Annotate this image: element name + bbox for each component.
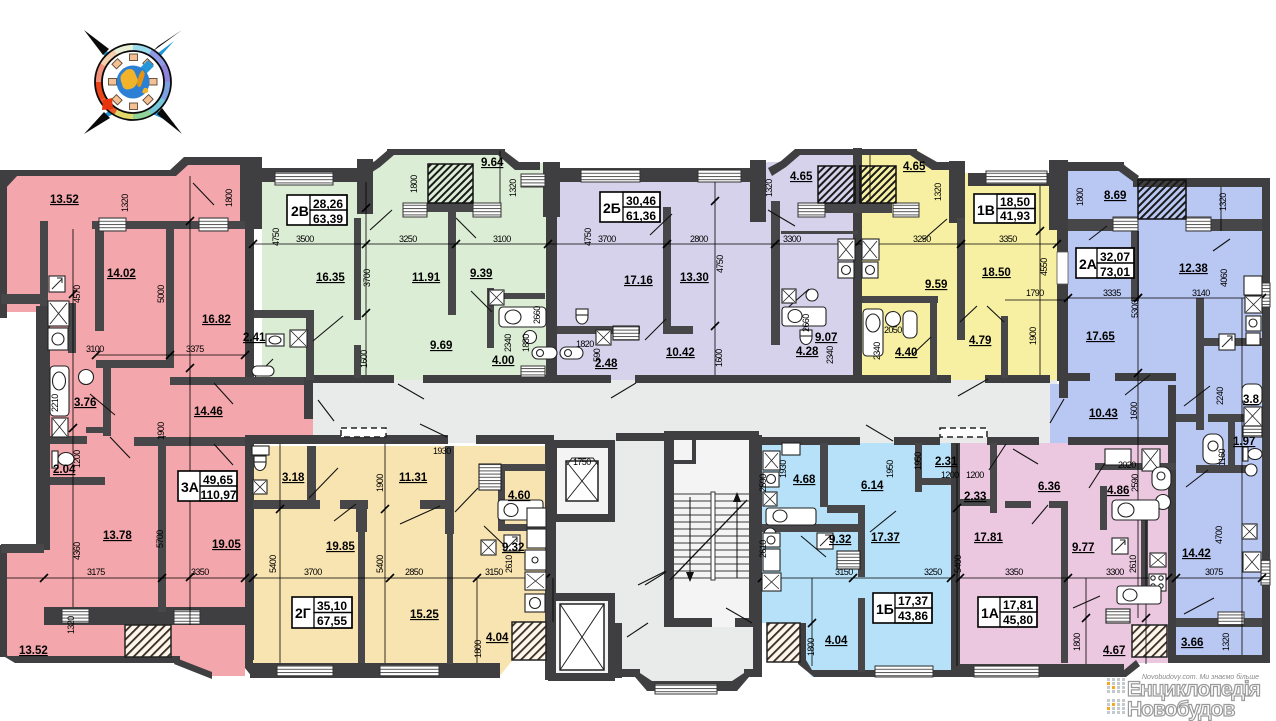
svg-text:1750: 1750 (573, 457, 591, 467)
svg-text:2800: 2800 (690, 234, 708, 244)
svg-text:8.69: 8.69 (1104, 190, 1126, 202)
svg-text:4.86: 4.86 (1107, 485, 1129, 497)
svg-text:3150: 3150 (835, 567, 853, 577)
svg-text:4.60: 4.60 (508, 490, 530, 502)
svg-text:3350: 3350 (191, 567, 209, 577)
svg-text:2.31: 2.31 (935, 456, 958, 468)
svg-text:4.68: 4.68 (793, 474, 816, 486)
svg-text:4570: 4570 (72, 285, 82, 303)
svg-text:6.14: 6.14 (861, 480, 884, 492)
svg-text:1160: 1160 (1217, 448, 1227, 466)
svg-text:14.02: 14.02 (107, 268, 136, 280)
svg-text:4750: 4750 (715, 255, 725, 273)
svg-text:3075: 3075 (1205, 567, 1223, 577)
svg-text:1320: 1320 (933, 183, 943, 201)
svg-text:18,50: 18,50 (1000, 195, 1030, 209)
svg-text:2590: 2590 (1130, 474, 1140, 492)
svg-text:43,86: 43,86 (898, 609, 928, 623)
svg-text:1320: 1320 (508, 179, 518, 197)
svg-text:3700: 3700 (598, 234, 616, 244)
svg-text:2850: 2850 (405, 567, 423, 577)
svg-text:11.31: 11.31 (399, 472, 428, 484)
svg-text:1950: 1950 (885, 460, 895, 478)
svg-text:17,81: 17,81 (1003, 598, 1033, 612)
svg-text:2610: 2610 (504, 555, 514, 573)
svg-text:3375: 3375 (186, 344, 204, 354)
svg-text:3150: 3150 (485, 567, 503, 577)
svg-text:2610: 2610 (1128, 555, 1138, 573)
svg-text:28,26: 28,26 (313, 197, 343, 211)
svg-text:4360: 4360 (72, 542, 82, 560)
svg-text:19.05: 19.05 (212, 539, 241, 551)
svg-text:1.97: 1.97 (1233, 436, 1255, 448)
svg-text:3250: 3250 (913, 234, 931, 244)
svg-text:1600: 1600 (359, 350, 369, 368)
svg-text:5400: 5400 (375, 555, 385, 573)
svg-text:13.52: 13.52 (19, 645, 48, 657)
svg-text:3335: 3335 (1103, 288, 1121, 298)
svg-text:13.78: 13.78 (103, 530, 132, 542)
svg-text:3А: 3А (181, 479, 199, 495)
svg-text:9.69: 9.69 (430, 340, 452, 352)
svg-text:18.50: 18.50 (982, 267, 1011, 279)
svg-text:4.04: 4.04 (825, 635, 848, 647)
svg-text:3250: 3250 (399, 234, 417, 244)
svg-text:5400: 5400 (268, 555, 278, 573)
svg-text:1320: 1320 (66, 616, 76, 634)
svg-text:1800: 1800 (1072, 633, 1082, 651)
svg-text:3.66: 3.66 (1181, 637, 1203, 649)
svg-text:1320: 1320 (120, 194, 130, 212)
svg-text:2Б: 2Б (603, 200, 621, 216)
svg-text:12.38: 12.38 (1179, 263, 1208, 275)
svg-text:35,10: 35,10 (317, 599, 347, 613)
svg-text:9.64: 9.64 (481, 157, 504, 169)
svg-text:2660: 2660 (801, 314, 811, 332)
svg-text:110,97: 110,97 (201, 488, 237, 502)
svg-text:13.30: 13.30 (680, 272, 709, 284)
svg-text:4700: 4700 (1214, 526, 1224, 544)
svg-text:Новобудов: Новобудов (1127, 698, 1235, 721)
svg-text:17.65: 17.65 (1086, 331, 1115, 343)
svg-text:9.39: 9.39 (470, 268, 492, 280)
svg-text:2210: 2210 (50, 394, 60, 412)
svg-text:30,46: 30,46 (626, 194, 656, 208)
svg-text:73,01: 73,01 (1100, 265, 1130, 279)
svg-text:4.40: 4.40 (895, 347, 917, 359)
svg-text:3500: 3500 (296, 234, 314, 244)
svg-text:14.46: 14.46 (194, 406, 223, 418)
svg-text:4.00: 4.00 (492, 355, 514, 367)
svg-text:4.67: 4.67 (1103, 645, 1125, 657)
svg-text:3300: 3300 (783, 234, 801, 244)
svg-text:4750: 4750 (583, 228, 593, 246)
svg-text:1А: 1А (981, 605, 999, 621)
svg-text:3350: 3350 (1005, 567, 1023, 577)
svg-text:2050: 2050 (884, 325, 902, 335)
svg-text:11.91: 11.91 (412, 272, 441, 284)
svg-text:5400: 5400 (953, 555, 963, 573)
svg-text:2340: 2340 (503, 334, 513, 352)
svg-text:4.65: 4.65 (790, 171, 813, 183)
svg-text:5000: 5000 (156, 285, 166, 303)
svg-text:16.82: 16.82 (202, 314, 231, 326)
svg-text:1320: 1320 (1221, 633, 1231, 651)
svg-text:1800: 1800 (1075, 188, 1085, 206)
svg-text:61,36: 61,36 (626, 209, 656, 223)
svg-text:2590: 2590 (758, 474, 768, 492)
svg-text:6.36: 6.36 (1038, 481, 1060, 493)
svg-text:9.32: 9.32 (829, 534, 851, 546)
svg-text:2020: 2020 (1118, 460, 1136, 470)
svg-text:4060: 4060 (1219, 269, 1229, 287)
svg-text:13.52: 13.52 (50, 194, 79, 206)
svg-text:3.18: 3.18 (282, 472, 305, 484)
svg-text:4.79: 4.79 (969, 335, 991, 347)
svg-text:19.85: 19.85 (326, 541, 355, 553)
svg-text:45,80: 45,80 (1003, 613, 1033, 627)
svg-text:9.59: 9.59 (925, 279, 947, 291)
svg-text:1900: 1900 (375, 474, 385, 492)
svg-text:1200: 1200 (72, 450, 82, 468)
svg-text:2.33: 2.33 (964, 491, 986, 503)
svg-text:3700: 3700 (362, 269, 372, 287)
svg-text:5700: 5700 (155, 530, 165, 548)
svg-text:2660: 2660 (532, 306, 542, 324)
svg-text:1930: 1930 (778, 460, 788, 478)
svg-text:15.25: 15.25 (410, 609, 439, 621)
svg-text:3140: 3140 (1192, 288, 1210, 298)
svg-text:1880: 1880 (521, 334, 531, 352)
svg-text:16.35: 16.35 (316, 272, 345, 284)
svg-text:3250: 3250 (924, 567, 942, 577)
svg-text:3175: 3175 (87, 567, 105, 577)
svg-text:590: 590 (592, 348, 602, 362)
svg-text:17.81: 17.81 (974, 532, 1003, 544)
svg-text:1820: 1820 (576, 339, 594, 349)
svg-text:3300: 3300 (1106, 567, 1124, 577)
svg-text:1790: 1790 (1026, 288, 1044, 298)
svg-text:1950: 1950 (913, 452, 923, 470)
svg-text:3350: 3350 (999, 234, 1017, 244)
svg-text:1600: 1600 (1129, 402, 1139, 420)
svg-text:4.65: 4.65 (903, 161, 926, 173)
svg-text:2А: 2А (1079, 256, 1097, 272)
svg-text:3700: 3700 (304, 567, 322, 577)
svg-text:4.04: 4.04 (486, 632, 509, 644)
svg-text:2.41: 2.41 (243, 332, 266, 344)
svg-text:2240: 2240 (1215, 387, 1225, 405)
svg-text:9.07: 9.07 (815, 332, 837, 344)
svg-text:1900: 1900 (1028, 327, 1038, 345)
svg-text:17.16: 17.16 (624, 275, 653, 287)
svg-text:2Г: 2Г (295, 605, 311, 621)
svg-text:1200: 1200 (941, 470, 959, 480)
svg-text:1320: 1320 (1218, 193, 1228, 211)
svg-text:14.42: 14.42 (1182, 548, 1211, 560)
svg-text:4.28: 4.28 (796, 346, 819, 358)
svg-text:17,37: 17,37 (898, 594, 928, 608)
svg-text:1600: 1600 (714, 349, 724, 367)
svg-text:63,39: 63,39 (313, 212, 343, 226)
svg-text:17.37: 17.37 (871, 532, 900, 544)
svg-text:3100: 3100 (493, 234, 511, 244)
svg-text:1800: 1800 (409, 175, 419, 193)
svg-text:1320: 1320 (764, 179, 774, 197)
svg-text:1800: 1800 (806, 638, 816, 656)
svg-text:10.43: 10.43 (1089, 408, 1118, 420)
svg-text:1200: 1200 (966, 470, 984, 480)
svg-text:2340: 2340 (825, 346, 835, 364)
svg-text:1Б: 1Б (876, 601, 894, 617)
svg-text:2340: 2340 (872, 342, 882, 360)
svg-text:10.42: 10.42 (666, 347, 695, 359)
svg-text:3.76: 3.76 (74, 397, 96, 409)
svg-text:67,55: 67,55 (317, 614, 347, 628)
svg-text:4750: 4750 (271, 228, 281, 246)
svg-text:49,65: 49,65 (203, 473, 233, 487)
svg-text:1800: 1800 (224, 189, 234, 207)
svg-text:1900: 1900 (156, 422, 166, 440)
svg-text:2В: 2В (291, 203, 309, 219)
svg-text:9.32: 9.32 (502, 542, 524, 554)
svg-text:5300: 5300 (1130, 300, 1140, 318)
svg-text:1930: 1930 (433, 446, 451, 456)
svg-text:4550: 4550 (1039, 258, 1049, 276)
svg-text:1В: 1В (977, 202, 995, 218)
svg-text:32,07: 32,07 (1100, 250, 1130, 264)
svg-text:9.77: 9.77 (1072, 542, 1094, 554)
svg-text:3.8: 3.8 (1243, 394, 1260, 406)
svg-text:1800: 1800 (473, 640, 483, 658)
svg-text:3100: 3100 (86, 344, 104, 354)
svg-text:2610: 2610 (758, 540, 768, 558)
svg-text:41,93: 41,93 (1000, 209, 1030, 223)
